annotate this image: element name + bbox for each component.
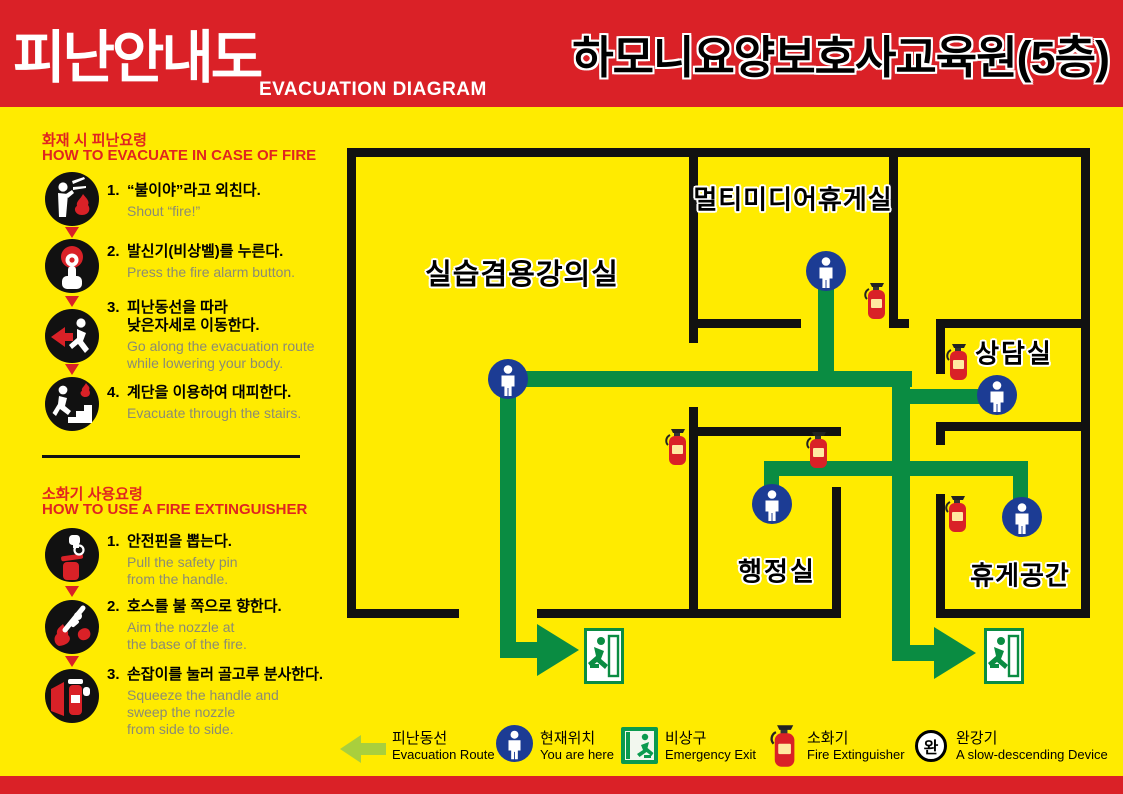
- step-text-ko: 손잡이를 눌러 골고루 분사한다.: [127, 666, 323, 684]
- press-alarm-icon: [45, 239, 99, 293]
- step-text-ko: 발신기(비상벨)를 누른다.: [127, 243, 283, 261]
- fire-extinguisher-icon: [805, 429, 831, 471]
- wall: [936, 319, 1090, 328]
- legend-item-location: 현재위치 You are here: [540, 730, 614, 763]
- wall: [347, 148, 356, 618]
- you-are-here-icon: [1002, 497, 1042, 537]
- legend-item-extinguisher: 소화기 Fire Extinguisher: [807, 730, 905, 763]
- step-text-ko: 피난동선을 따라 낮은자세로 이동한다.: [127, 299, 260, 335]
- footer-bar: [0, 776, 1123, 794]
- step-number: 3.: [107, 666, 127, 684]
- fire-extinguisher-icon: [945, 341, 971, 383]
- step-text-en: Squeeze the handle and sweep the nozzle …: [107, 687, 347, 738]
- step-text-ko: 호스를 불 쪽으로 향한다.: [127, 598, 282, 616]
- evacuation-route-segment: [892, 645, 936, 661]
- squeeze-sweep-icon: [45, 669, 99, 723]
- aim-nozzle-icon: [45, 600, 99, 654]
- legend-label-en: Evacuation Route: [392, 747, 495, 763]
- fire-extinguisher-icon: [863, 280, 889, 322]
- step-text-en: Press the fire alarm button.: [107, 264, 347, 281]
- legend-item-exit: 비상구 Emergency Exit: [665, 730, 756, 763]
- step-number: 2.: [107, 598, 127, 616]
- wall: [347, 148, 1090, 157]
- step-text-en: Pull the safety pin from the handle.: [107, 554, 347, 588]
- wall: [938, 609, 1090, 618]
- down-triangle-icon: [65, 586, 79, 597]
- evacuation-route-segment: [500, 385, 516, 657]
- you-are-here-icon: [496, 725, 533, 762]
- you-are-here-icon: [806, 251, 846, 291]
- evacuation-route-segment: [508, 371, 912, 387]
- down-triangle-icon: [65, 227, 79, 238]
- you-are-here-icon: [977, 375, 1017, 415]
- step-text-ko: “불이야”라고 외친다.: [127, 182, 261, 200]
- wall: [347, 609, 459, 618]
- emergency-exit-icon: [621, 727, 658, 764]
- fire-extinguisher-icon: [664, 426, 690, 468]
- step-text-ko: 안전핀을 뽑는다.: [127, 533, 232, 551]
- building-title: 하모니요양보호사교육원(5층): [572, 21, 1109, 86]
- wan-symbol: 완: [924, 734, 939, 758]
- wall: [1081, 148, 1090, 618]
- evacuation-route-segment: [500, 642, 540, 658]
- legend-label-en: A slow-descending Device: [956, 747, 1108, 763]
- wall: [936, 422, 1090, 431]
- wall: [689, 407, 698, 618]
- room-label: 멀티미디어휴게실: [693, 180, 892, 217]
- evacuation-route-segment: [904, 389, 984, 404]
- fire-guide-heading-en: HOW TO EVACUATE IN CASE OF FIRE: [42, 147, 316, 164]
- page-title: 피난안내도: [13, 12, 260, 94]
- room-label: 실습겸용강의실: [425, 251, 619, 293]
- you-are-here-icon: [752, 484, 792, 524]
- wall: [936, 422, 945, 445]
- evacuation-route-segment: [764, 461, 1028, 476]
- legend-item-descender: 완강기 A slow-descending Device: [956, 730, 1108, 763]
- wall: [889, 319, 909, 328]
- stairs-down-icon: [45, 377, 99, 431]
- page-subtitle: EVACUATION DIAGRAM: [259, 79, 487, 101]
- fire-guide-step-3: 3.피난동선을 따라 낮은자세로 이동한다. Go along the evac…: [107, 299, 347, 372]
- extinguisher-step-2: 2.호스를 불 쪽으로 향한다. Aim the nozzle at the b…: [107, 598, 347, 653]
- legend-label-en: Emergency Exit: [665, 747, 756, 763]
- down-triangle-icon: [65, 296, 79, 307]
- step-number: 4.: [107, 384, 127, 402]
- fire-guide-step-2: 2.발신기(비상벨)를 누른다. Press the fire alarm bu…: [107, 243, 347, 281]
- step-text-en: Evacuate through the stairs.: [107, 405, 347, 422]
- extinguisher-step-1: 1.안전핀을 뽑는다. Pull the safety pin from the…: [107, 533, 347, 588]
- step-text-en: Go along the evacuation route while lowe…: [107, 338, 347, 372]
- evacuation-route-segment: [892, 379, 910, 645]
- legend-label-ko: 완강기: [956, 730, 1108, 747]
- fire-extinguisher-icon: [769, 721, 799, 771]
- legend-label-ko: 비상구: [665, 730, 756, 747]
- wall: [936, 319, 945, 374]
- crouch-run-icon: [45, 309, 99, 363]
- route-arrow-icon: [340, 733, 386, 765]
- evacuation-route-arrowhead: [537, 624, 579, 676]
- legend-label-ko: 소화기: [807, 730, 905, 747]
- fire-guide-step-4: 4.계단을 이용하여 대피한다. Evacuate through the st…: [107, 384, 347, 422]
- sidebar-divider: [42, 455, 300, 458]
- emergency-exit-icon: [984, 628, 1024, 684]
- wall: [689, 148, 698, 343]
- step-number: 1.: [107, 182, 127, 200]
- step-text-en: Shout “fire!”: [107, 203, 347, 220]
- room-label: 행정실: [738, 552, 816, 589]
- legend-label-ko: 피난동선: [392, 730, 495, 747]
- evacuation-diagram-poster: 피난안내도 EVACUATION DIAGRAM 하모니요양보호사교육원(5층)…: [0, 0, 1123, 794]
- shout-fire-icon: [45, 172, 99, 226]
- you-are-here-icon: [488, 359, 528, 399]
- extinguisher-guide-heading-en: HOW TO USE A FIRE EXTINGUISHER: [42, 501, 307, 518]
- descending-device-icon: 완: [915, 730, 947, 762]
- step-number: 2.: [107, 243, 127, 261]
- down-triangle-icon: [65, 364, 79, 375]
- wall: [689, 319, 801, 328]
- evacuation-route-segment: [818, 276, 834, 379]
- wall: [889, 148, 898, 328]
- emergency-exit-icon: [584, 628, 624, 684]
- wall: [832, 487, 841, 618]
- room-label: 상담실: [975, 334, 1053, 371]
- fire-guide-step-1: 1.“불이야”라고 외친다. Shout “fire!”: [107, 182, 347, 220]
- pull-pin-icon: [45, 528, 99, 582]
- evacuation-route-arrowhead: [934, 627, 976, 679]
- extinguisher-step-3: 3.손잡이를 눌러 골고루 분사한다. Squeeze the handle a…: [107, 666, 347, 738]
- step-text-ko: 계단을 이용하여 대피한다.: [127, 384, 291, 402]
- step-text-en: Aim the nozzle at the base of the fire.: [107, 619, 347, 653]
- down-triangle-icon: [65, 656, 79, 667]
- step-number: 3.: [107, 299, 127, 335]
- header-bar: 피난안내도 EVACUATION DIAGRAM 하모니요양보호사교육원(5층): [0, 0, 1123, 107]
- legend-label-en: You are here: [540, 747, 614, 763]
- legend-item-route: 피난동선 Evacuation Route: [392, 730, 495, 763]
- room-label: 휴게공간: [970, 556, 1070, 593]
- fire-extinguisher-icon: [944, 493, 970, 535]
- legend-label-en: Fire Extinguisher: [807, 747, 905, 763]
- step-number: 1.: [107, 533, 127, 551]
- legend-label-ko: 현재위치: [540, 730, 614, 747]
